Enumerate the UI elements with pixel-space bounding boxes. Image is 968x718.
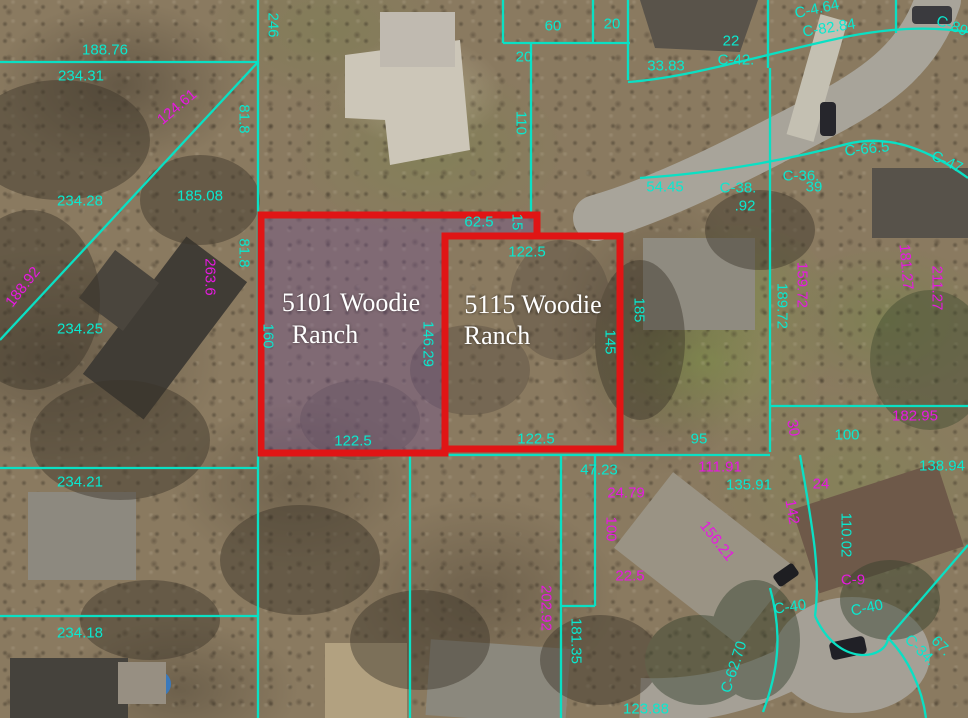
cyan-dimension-label: .92: [735, 199, 756, 214]
cyan-dimension-label: 234.18: [57, 626, 103, 641]
cyan-dimension-label: 60: [545, 19, 562, 34]
aerial-map: 188.76234.3124681.8234.2881.8234.2516023…: [0, 0, 968, 718]
magenta-dimension-label: 263.6: [203, 258, 218, 296]
cyan-dimension-label: 20: [604, 17, 621, 32]
cyan-dimension-label: 62.5: [464, 215, 493, 230]
cyan-dimension-label: 123.88: [623, 702, 669, 717]
cyan-dimension-label: 234.25: [57, 322, 103, 337]
cyan-dimension-label: 181.35: [569, 618, 584, 664]
magenta-dimension-label: 22.5: [615, 569, 644, 584]
cyan-dimension-label: 95: [691, 432, 708, 447]
cyan-dimension-label: 189.72: [775, 283, 790, 329]
cyan-dimension-label: 188.76: [82, 43, 128, 58]
cyan-dimension-label: 122.5: [508, 245, 546, 260]
cyan-dimension-label: 234.28: [57, 194, 103, 209]
magenta-dimension-label: 100: [604, 516, 619, 541]
cyan-dimension-label: 110.02: [839, 513, 854, 558]
cyan-dimension-label: 246: [266, 12, 281, 37]
magenta-dimension-label: 24: [813, 477, 830, 492]
cyan-dimension-label: 135.91: [726, 478, 772, 493]
cyan-dimension-label: 22: [723, 34, 740, 49]
parcel-address-label: 5101 Woodie: [282, 290, 420, 316]
cyan-dimension-label: C-40: [773, 597, 807, 616]
cyan-dimension-label: 234.31: [58, 69, 104, 84]
parcel-boundary-line: [815, 616, 888, 655]
cyan-dimension-label: 160: [261, 323, 276, 348]
magenta-dimension-label: 202.92: [539, 585, 554, 631]
magenta-dimension-label: 30: [784, 418, 802, 437]
parcel-address-label: 5115 Woodie: [464, 292, 601, 318]
cyan-dimension-label: 20: [516, 50, 533, 65]
cyan-dimension-label: 146.29: [421, 321, 436, 367]
cyan-dimension-label: 110: [514, 111, 529, 135]
cyan-dimension-label: 33.83: [647, 59, 685, 74]
cyan-dimension-label: 185.08: [177, 189, 223, 204]
cyan-dimension-label: 81.8: [237, 238, 252, 267]
magenta-dimension-label: 211.27: [930, 266, 945, 311]
cyan-dimension-label: 54.45: [646, 180, 684, 195]
cyan-dimension-label: 185: [632, 297, 647, 322]
cyan-dimension-label: 39: [806, 180, 823, 195]
cyan-dimension-label: 145: [603, 329, 618, 354]
magenta-dimension-label: 182.95: [892, 409, 938, 424]
magenta-dimension-label: 24.79: [607, 486, 645, 501]
cyan-dimension-label: 122.5: [334, 434, 372, 449]
magenta-dimension-label: 142: [782, 498, 801, 525]
parcel-boundary-line: [888, 545, 968, 638]
parcel-address-label: Ranch: [464, 323, 530, 349]
cyan-dimension-label: 234.21: [57, 475, 103, 490]
magenta-dimension-label: 111.91: [698, 460, 742, 475]
cyan-dimension-label: 138.94: [919, 459, 965, 474]
parcel-address-label: Ranch: [292, 322, 358, 348]
cyan-dimension-label: C-38.: [720, 181, 757, 196]
cyan-dimension-label: 122.5: [517, 432, 555, 447]
cyan-dimension-label: 15: [510, 214, 525, 231]
cyan-dimension-label: 47.23: [580, 463, 618, 478]
cyan-dimension-label: C-42.: [718, 53, 755, 68]
parcel-overlay: [0, 0, 968, 718]
magenta-dimension-label: C-9: [841, 573, 865, 588]
magenta-dimension-label: 159.72: [795, 262, 810, 308]
cyan-dimension-label: 100: [834, 428, 859, 443]
magenta-dimension-label: 181.27: [897, 243, 916, 290]
cyan-dimension-label: 81.8: [237, 104, 252, 133]
